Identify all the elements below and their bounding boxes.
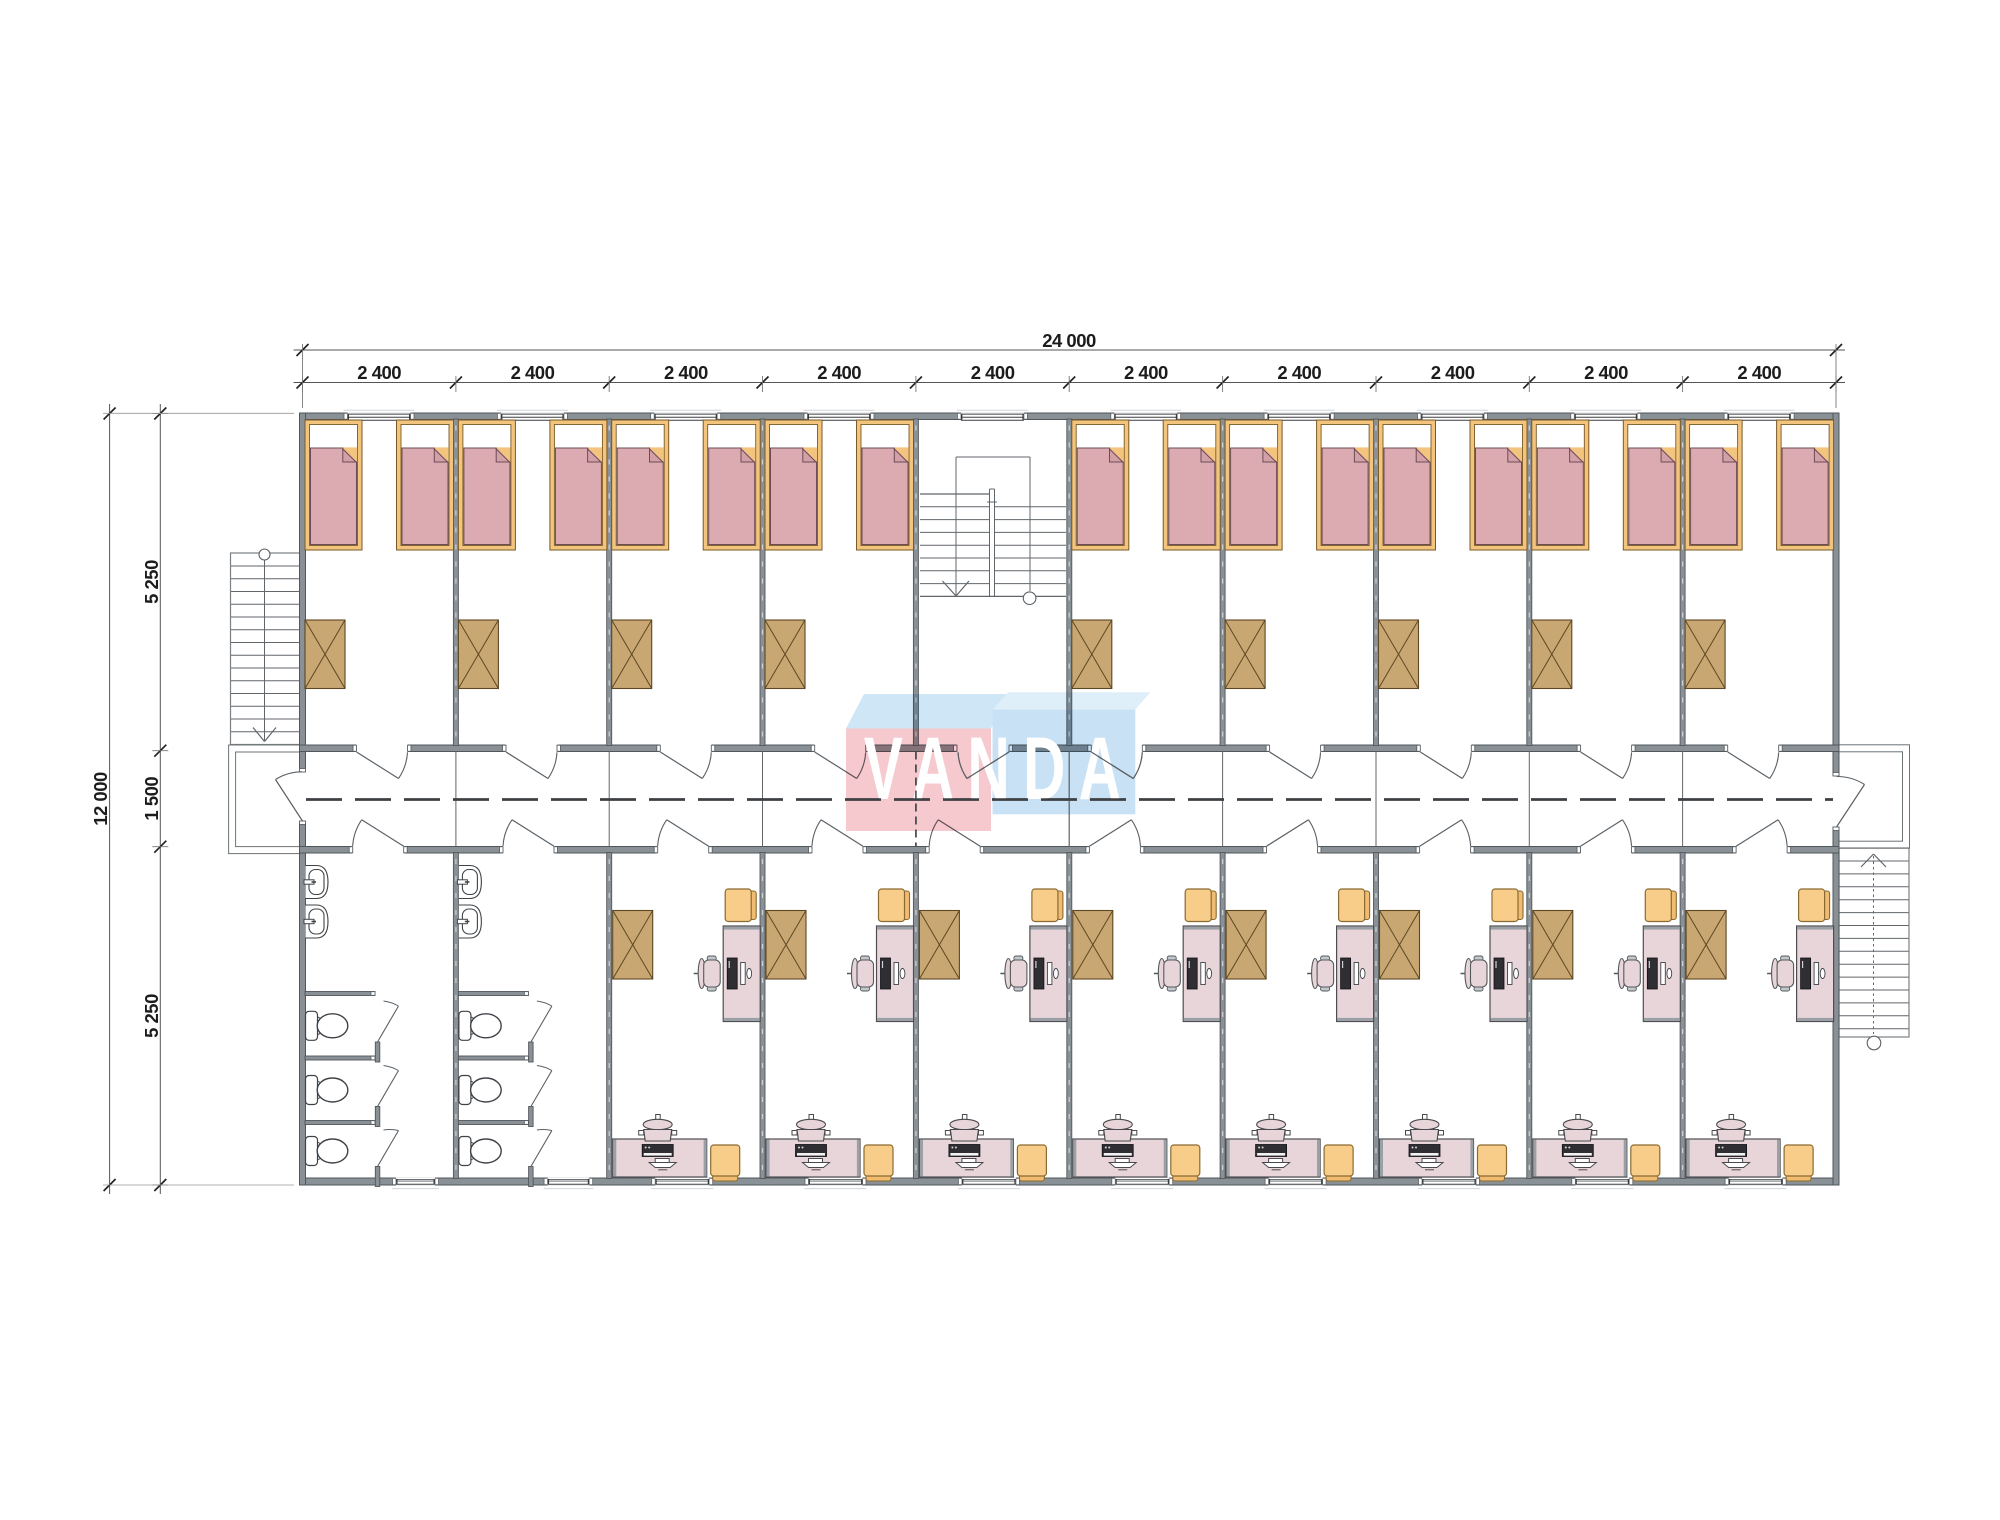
svg-text:2 400: 2 400 <box>1584 362 1628 383</box>
svg-text:2 400: 2 400 <box>1124 362 1168 383</box>
svg-text:2 400: 2 400 <box>971 362 1015 383</box>
svg-text:5 250: 5 250 <box>141 560 162 604</box>
svg-text:2 400: 2 400 <box>1737 362 1781 383</box>
svg-text:2 400: 2 400 <box>357 362 401 383</box>
svg-text:2 400: 2 400 <box>1431 362 1475 383</box>
svg-text:2 400: 2 400 <box>664 362 708 383</box>
svg-text:12 000: 12 000 <box>90 772 111 826</box>
svg-text:24 000: 24 000 <box>1042 330 1096 351</box>
svg-text:2 400: 2 400 <box>511 362 555 383</box>
svg-text:1 500: 1 500 <box>141 777 162 821</box>
svg-text:2 400: 2 400 <box>1277 362 1321 383</box>
svg-text:2 400: 2 400 <box>817 362 861 383</box>
svg-text:VANDA: VANDA <box>864 719 1134 818</box>
svg-text:5 250: 5 250 <box>141 994 162 1038</box>
